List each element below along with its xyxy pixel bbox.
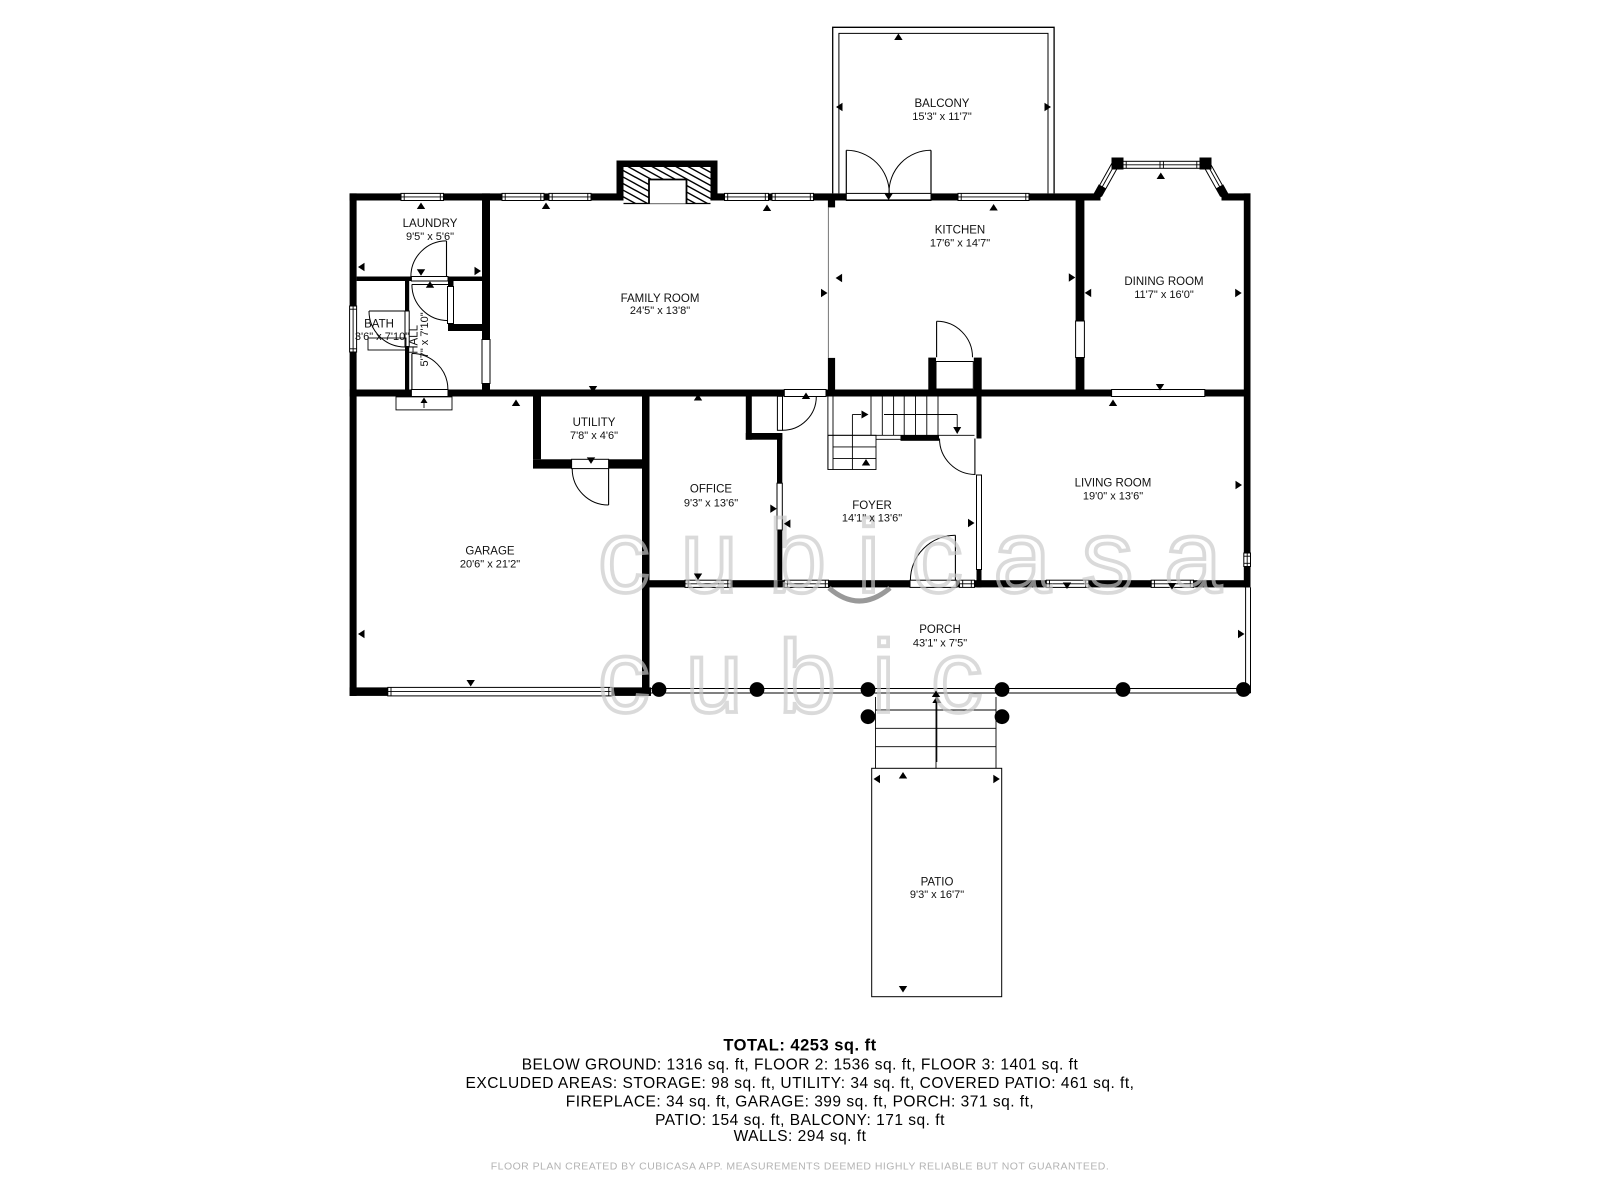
svg-text:3'6" x 7'10": 3'6" x 7'10" — [355, 331, 409, 343]
svg-text:15'3" x 11'7": 15'3" x 11'7" — [912, 111, 972, 123]
svg-text:UTILITY: UTILITY — [573, 417, 616, 429]
svg-text:14'1" x 13'6": 14'1" x 13'6" — [842, 513, 902, 525]
svg-text:DINING ROOM: DINING ROOM — [1124, 276, 1203, 288]
svg-text:cubic: cubic — [598, 619, 1018, 734]
svg-text:LIVING ROOM: LIVING ROOM — [1075, 478, 1152, 490]
svg-text:20'6" x 21'2": 20'6" x 21'2" — [460, 559, 520, 571]
svg-text:43'1" x 7'5": 43'1" x 7'5" — [913, 638, 967, 650]
svg-text:WALLS: 294 sq. ft: WALLS: 294 sq. ft — [734, 1128, 867, 1145]
svg-text:17'6" x 14'7": 17'6" x 14'7" — [930, 238, 990, 250]
svg-text:FLOOR PLAN CREATED BY CUBICASA: FLOOR PLAN CREATED BY CUBICASA APP. MEAS… — [491, 1160, 1109, 1172]
svg-text:KITCHEN: KITCHEN — [935, 225, 985, 237]
svg-text:PATIO: PATIO — [921, 877, 954, 889]
svg-text:FAMILY ROOM: FAMILY ROOM — [621, 293, 700, 305]
svg-text:19'0" x 13'6": 19'0" x 13'6" — [1083, 491, 1143, 503]
svg-text:24'5" x 13'8": 24'5" x 13'8" — [630, 305, 690, 317]
svg-text:cubicasa: cubicasa — [598, 499, 1253, 614]
svg-text:LAUNDRY: LAUNDRY — [403, 218, 458, 230]
svg-text:BELOW GROUND: 1316 sq. ft, FLO: BELOW GROUND: 1316 sq. ft, FLOOR 2: 1536… — [522, 1056, 1079, 1073]
svg-text:FOYER: FOYER — [852, 500, 892, 512]
svg-text:OFFICE: OFFICE — [690, 484, 732, 496]
svg-text:9'3" x 16'7": 9'3" x 16'7" — [910, 889, 964, 901]
svg-text:9'3" x 13'6": 9'3" x 13'6" — [684, 498, 738, 510]
svg-text:11'7" x 16'0": 11'7" x 16'0" — [1134, 289, 1194, 301]
svg-text:PORCH: PORCH — [919, 624, 961, 636]
svg-text:9'5" x 5'6": 9'5" x 5'6" — [406, 231, 454, 243]
svg-text:EXCLUDED AREAS: STORAGE: 98 sq: EXCLUDED AREAS: STORAGE: 98 sq. ft, UTIL… — [466, 1075, 1135, 1092]
svg-text:PATIO: 154 sq. ft, BALCONY: 17: PATIO: 154 sq. ft, BALCONY: 171 sq. ft — [655, 1112, 945, 1129]
svg-text:BATH: BATH — [364, 319, 394, 331]
svg-text:FIREPLACE: 34 sq. ft, GARAGE:: FIREPLACE: 34 sq. ft, GARAGE: 399 sq. ft… — [566, 1094, 1034, 1111]
svg-text:5'7" x 7'10": 5'7" x 7'10" — [419, 312, 431, 366]
svg-text:TOTAL: 4253 sq. ft: TOTAL: 4253 sq. ft — [723, 1036, 876, 1054]
svg-text:BALCONY: BALCONY — [915, 98, 970, 110]
svg-text:7'8" x 4'6": 7'8" x 4'6" — [570, 430, 618, 442]
svg-text:GARAGE: GARAGE — [465, 546, 515, 558]
